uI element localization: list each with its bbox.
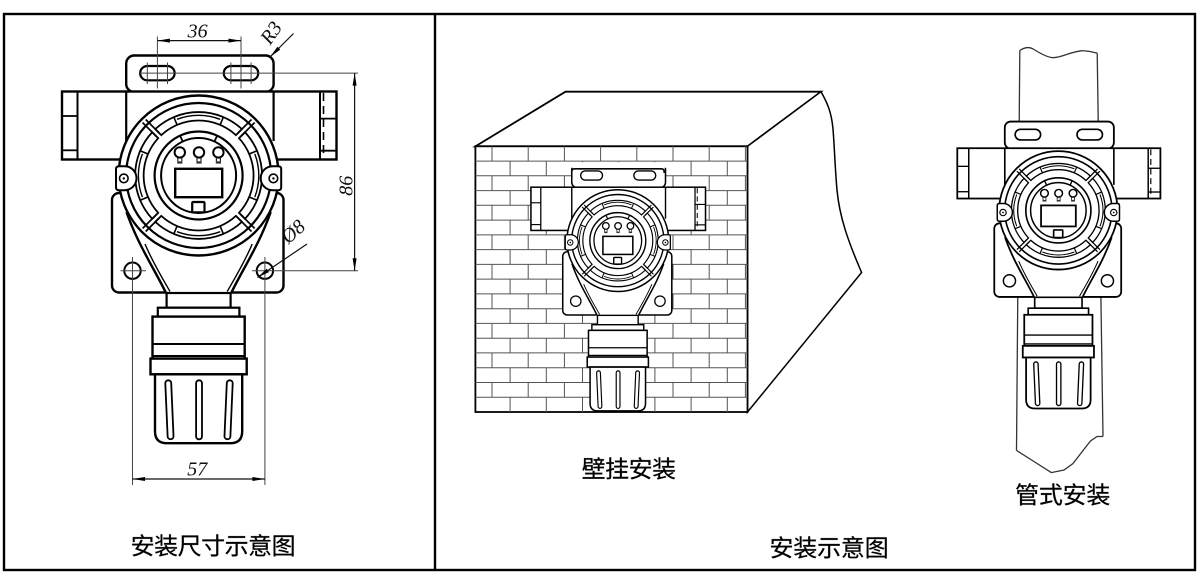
svg-text:57: 57 xyxy=(187,459,208,481)
svg-text:36: 36 xyxy=(187,21,208,43)
svg-text:86: 86 xyxy=(336,176,358,196)
